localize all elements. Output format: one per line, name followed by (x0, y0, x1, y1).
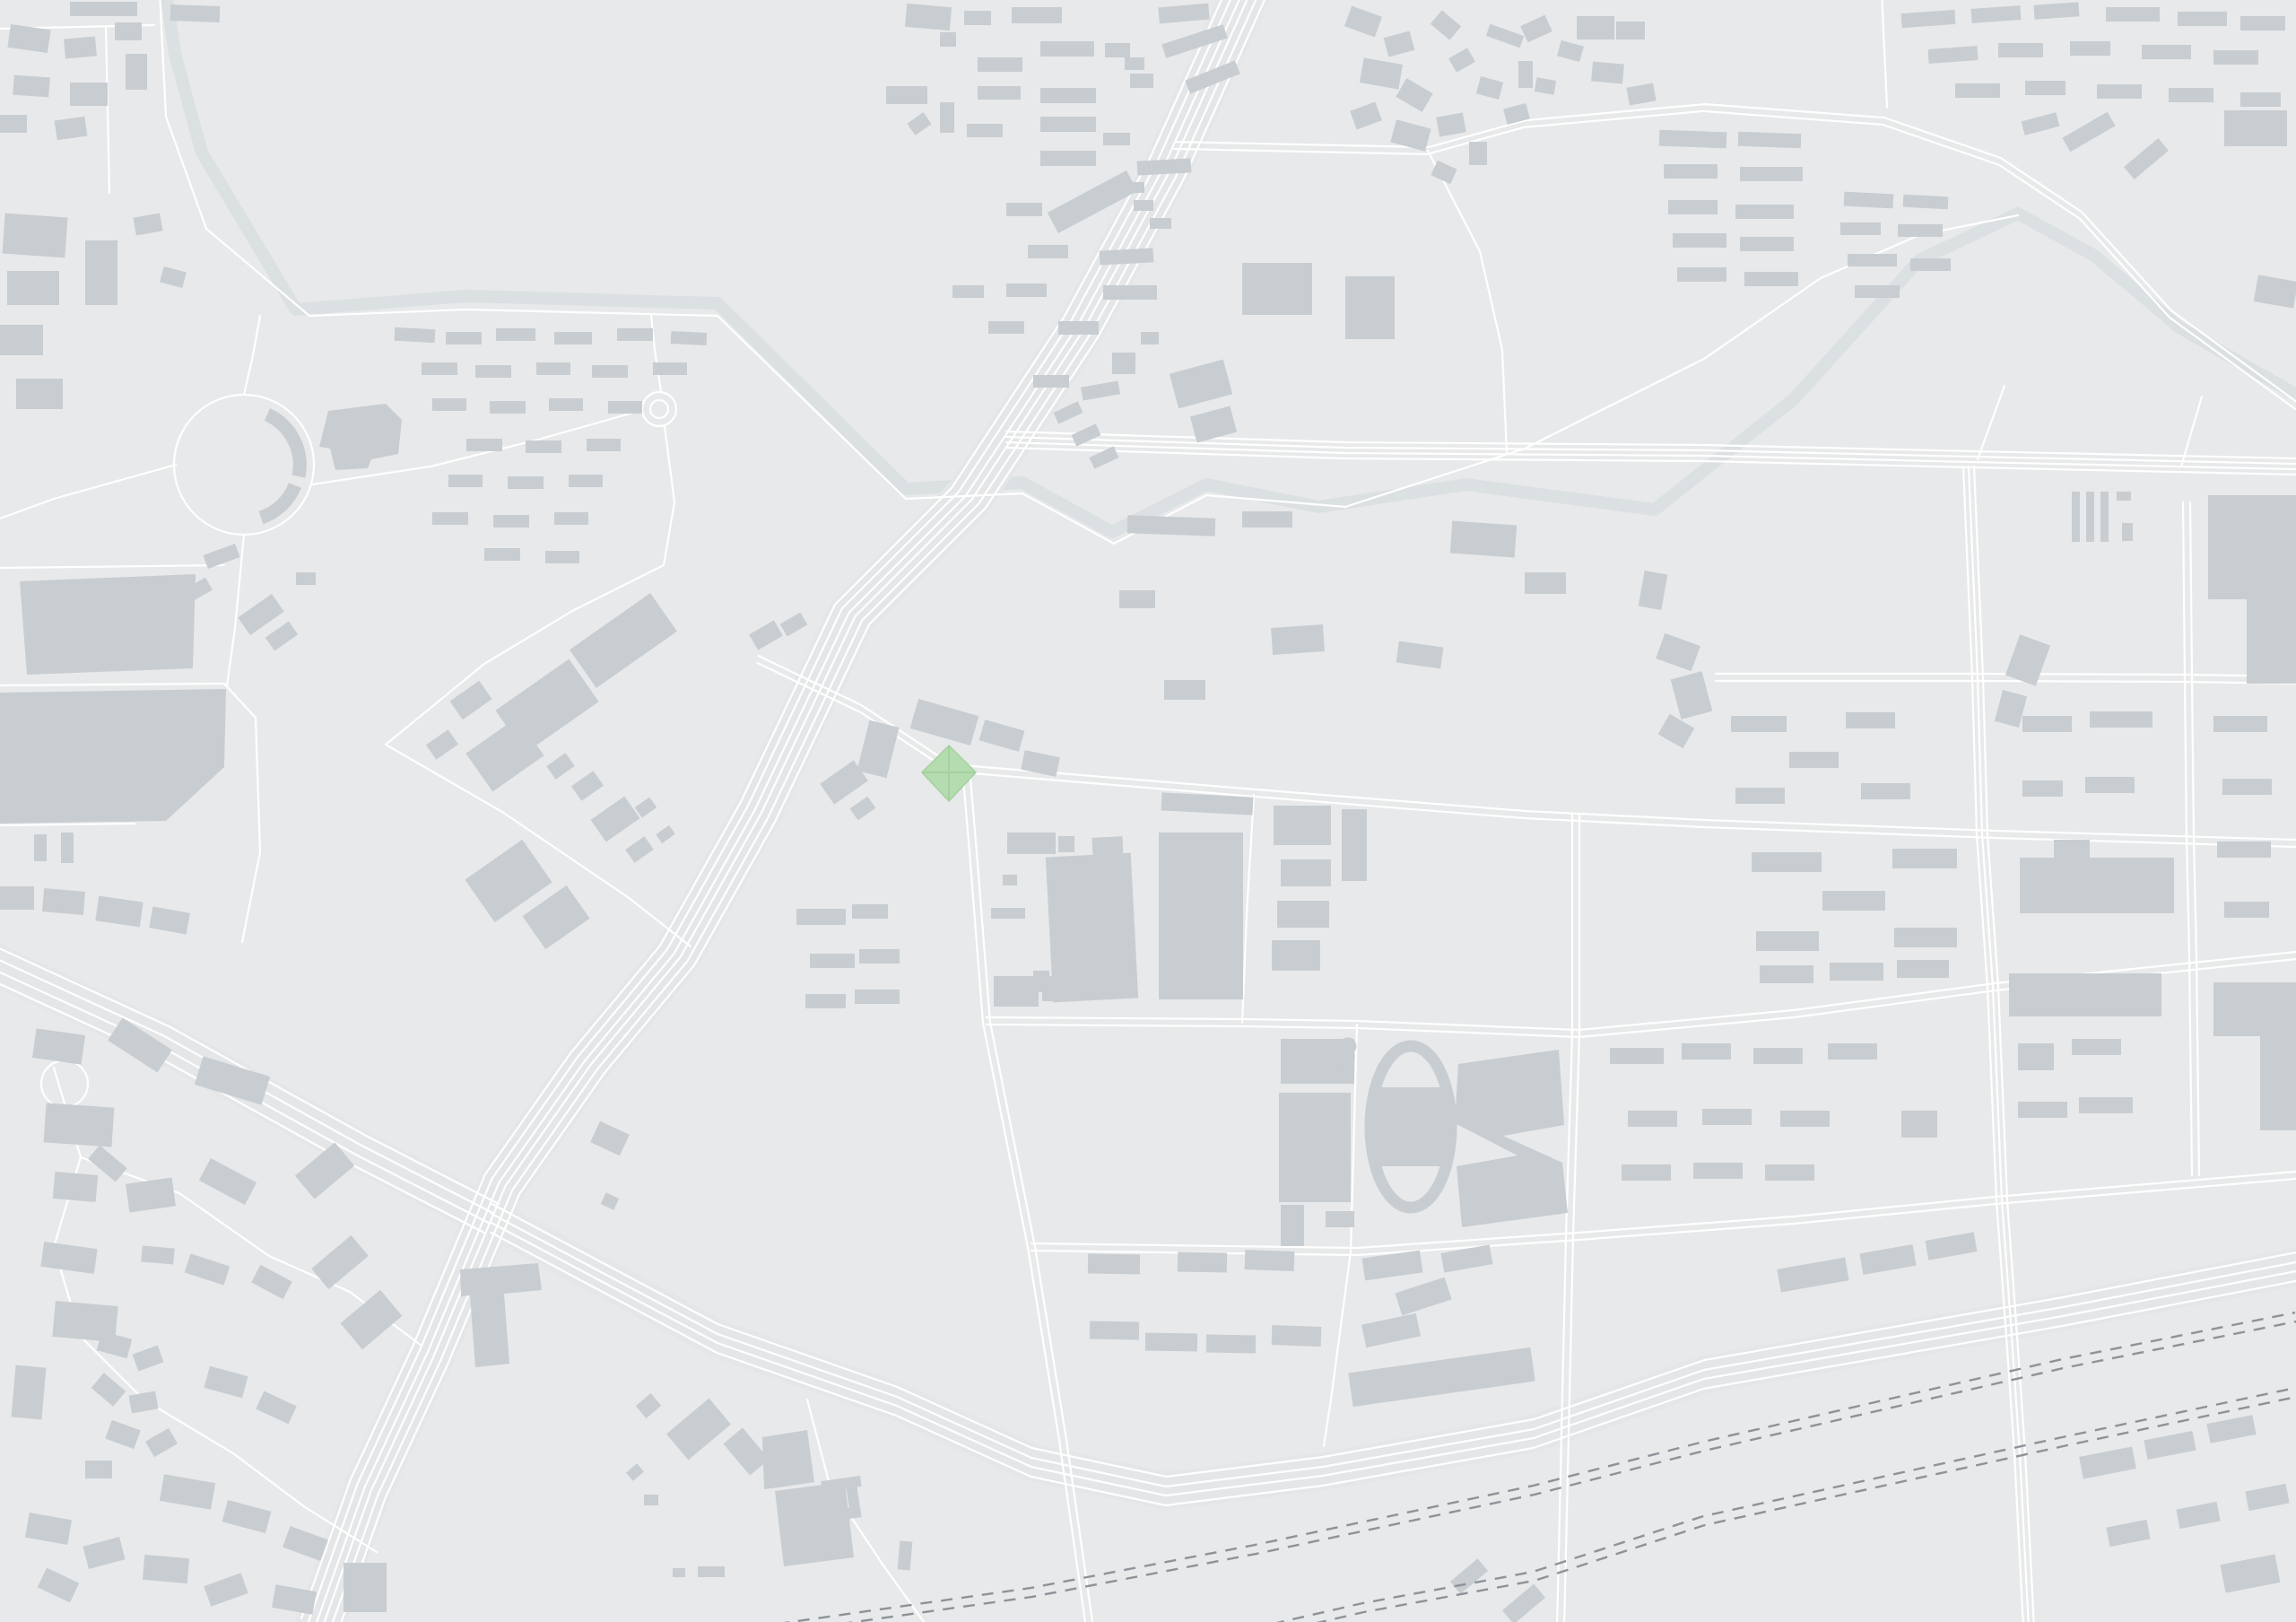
building (905, 4, 952, 31)
building (1450, 521, 1517, 558)
building (1735, 205, 1794, 219)
building (1100, 248, 1154, 265)
building (1525, 572, 1566, 594)
building (967, 124, 1003, 137)
building (2142, 45, 2191, 59)
building (115, 22, 142, 40)
building (1281, 1205, 1304, 1246)
building (2222, 779, 2272, 795)
building (1844, 192, 1894, 209)
building (2117, 492, 2131, 501)
building (1006, 283, 1047, 297)
building (952, 285, 984, 298)
building (886, 86, 927, 104)
building (1469, 142, 1487, 165)
building (170, 4, 221, 22)
building (1006, 203, 1042, 216)
building (1828, 1043, 1877, 1060)
building (1955, 83, 2000, 98)
building (490, 401, 526, 414)
building (1848, 254, 1897, 266)
building (1090, 1321, 1139, 1340)
building (1272, 1325, 1322, 1347)
building (2213, 50, 2258, 65)
building (1789, 752, 1839, 768)
building (466, 439, 502, 451)
building (2122, 523, 2133, 541)
building (1141, 332, 1159, 344)
building (61, 833, 74, 863)
building (1903, 195, 1949, 210)
building (2025, 81, 2066, 95)
building (1058, 836, 1074, 852)
building (1740, 167, 1803, 181)
building (1206, 1335, 1256, 1354)
building (545, 551, 579, 563)
building (994, 976, 1039, 1007)
building (1040, 88, 1096, 103)
building (16, 379, 63, 409)
building (1998, 43, 2043, 57)
building (2085, 777, 2135, 793)
building (496, 328, 535, 341)
building (1731, 716, 1787, 732)
building (13, 75, 49, 98)
building (34, 834, 47, 861)
building (2090, 711, 2152, 728)
building (7, 271, 59, 305)
building (608, 401, 642, 414)
building (549, 398, 583, 411)
building (644, 1495, 658, 1505)
building (1702, 1109, 1752, 1125)
building (536, 362, 570, 375)
building (988, 321, 1024, 334)
building (1003, 875, 1017, 885)
building (2018, 1043, 2054, 1070)
building (446, 332, 482, 344)
building (1682, 1043, 1731, 1060)
building (1326, 1211, 1354, 1227)
building (2240, 92, 2281, 107)
building (1738, 132, 1802, 148)
building (1840, 222, 1881, 235)
building (1861, 783, 1910, 799)
building (940, 102, 954, 133)
building (671, 331, 708, 345)
building (1628, 1111, 1677, 1127)
building (2020, 858, 2174, 913)
building (70, 83, 108, 106)
building (141, 1245, 174, 1264)
building (508, 476, 544, 489)
building (1033, 375, 1069, 388)
building (484, 548, 520, 561)
building (296, 572, 316, 585)
building (2224, 110, 2287, 146)
building (554, 332, 592, 344)
building (1145, 1332, 1197, 1351)
building (2240, 16, 2285, 31)
building (475, 365, 511, 378)
building (1105, 43, 1130, 57)
building (0, 115, 27, 133)
building (1091, 836, 1123, 858)
building (344, 1563, 387, 1612)
building (85, 240, 117, 305)
building (991, 908, 1025, 919)
building (1277, 901, 1329, 928)
building (1040, 117, 1096, 132)
building (2097, 84, 2142, 99)
building (1040, 41, 1094, 57)
building (1125, 57, 1144, 70)
building (1103, 285, 1157, 300)
building (0, 325, 43, 355)
building (3, 214, 68, 258)
building (859, 949, 900, 964)
building (1134, 200, 1153, 211)
building (698, 1566, 725, 1577)
building (70, 2, 137, 16)
building (1910, 258, 1951, 271)
building (855, 990, 900, 1004)
building (1279, 1093, 1351, 1202)
building (1892, 849, 1957, 868)
building (805, 994, 846, 1008)
building (493, 515, 529, 528)
building (673, 1568, 685, 1577)
building (2009, 973, 2161, 1016)
building (1756, 931, 1819, 951)
building (55, 117, 88, 141)
building (2217, 842, 2271, 858)
building (1744, 272, 1798, 286)
building (1677, 267, 1726, 282)
building (2054, 840, 2090, 858)
building (1591, 62, 1624, 84)
building (143, 1555, 189, 1583)
building (2213, 716, 2267, 732)
building (2022, 716, 2072, 732)
building (1577, 16, 1614, 39)
building (2072, 1039, 2121, 1055)
building (554, 512, 588, 525)
building (1040, 151, 1096, 166)
building (2022, 780, 2063, 797)
building (1673, 233, 1726, 248)
building (1127, 515, 1216, 536)
building (653, 362, 687, 375)
building (1894, 928, 1957, 947)
building (1028, 245, 1068, 258)
building (1178, 1252, 1227, 1273)
building (1760, 965, 1813, 983)
building (1012, 7, 1062, 23)
building (2072, 492, 2080, 542)
building (1622, 1164, 1671, 1181)
building (1740, 237, 1794, 251)
building (1518, 61, 1533, 88)
building (617, 328, 653, 341)
building (42, 888, 85, 915)
building (810, 954, 855, 968)
building (1242, 263, 1312, 315)
building (1735, 788, 1785, 804)
building (2086, 492, 2094, 542)
building (2070, 41, 2110, 56)
building (12, 1365, 47, 1420)
building (1112, 353, 1135, 374)
building (1897, 960, 1949, 978)
building-polygon (20, 574, 196, 675)
building (432, 512, 468, 525)
building (126, 54, 147, 90)
building (1822, 891, 1885, 911)
building (1693, 1163, 1743, 1179)
building (2106, 7, 2160, 22)
building (569, 475, 603, 487)
building (1245, 1250, 1295, 1271)
building (448, 475, 483, 487)
building (2018, 1102, 2067, 1118)
building (1898, 224, 1943, 237)
building-polygon (775, 1482, 854, 1566)
building (432, 398, 466, 411)
building (1830, 963, 1883, 981)
building (1088, 1253, 1140, 1274)
building (852, 904, 888, 919)
building (592, 365, 628, 378)
building (2100, 492, 2109, 542)
building (1345, 276, 1395, 339)
building (978, 57, 1022, 72)
building-polygon (762, 1430, 814, 1489)
building (1103, 133, 1130, 145)
building (1616, 22, 1645, 39)
building (1610, 1048, 1664, 1064)
map-canvas[interactable] (0, 0, 2296, 1622)
building (1058, 321, 1099, 335)
building (1752, 852, 1822, 872)
building (796, 909, 846, 925)
building (395, 327, 436, 343)
building (978, 86, 1021, 100)
building (898, 1540, 913, 1570)
building (1664, 164, 1718, 179)
building (1855, 285, 1900, 298)
building (526, 440, 561, 453)
building (1668, 200, 1718, 214)
building (1242, 511, 1292, 528)
building (1159, 833, 1243, 999)
building (422, 362, 457, 375)
building (1042, 976, 1069, 1001)
building (0, 886, 34, 910)
building (64, 37, 97, 59)
building (1119, 590, 1155, 608)
building (1271, 624, 1325, 655)
building (1281, 859, 1331, 886)
building (1274, 806, 1331, 845)
building (1753, 1048, 1803, 1064)
building (1901, 1111, 1937, 1138)
building (2079, 1097, 2133, 1113)
building (1272, 940, 1320, 971)
building (587, 439, 621, 451)
building (1130, 74, 1153, 88)
map-viewport (0, 0, 2296, 1622)
building (2224, 902, 2269, 918)
building (1150, 218, 1171, 229)
building (1137, 158, 1192, 175)
building (53, 1172, 98, 1202)
building (1846, 712, 1895, 728)
building (1765, 1164, 1814, 1181)
building (1659, 130, 1727, 149)
building (2169, 88, 2213, 102)
building (1007, 833, 1056, 854)
building (44, 1103, 115, 1147)
building (940, 32, 956, 47)
building (1780, 1111, 1830, 1127)
building (85, 1461, 112, 1478)
stadium-infield (1370, 1087, 1451, 1166)
building (2178, 12, 2227, 26)
building (1342, 809, 1367, 881)
building (1164, 680, 1205, 700)
building (964, 11, 991, 25)
